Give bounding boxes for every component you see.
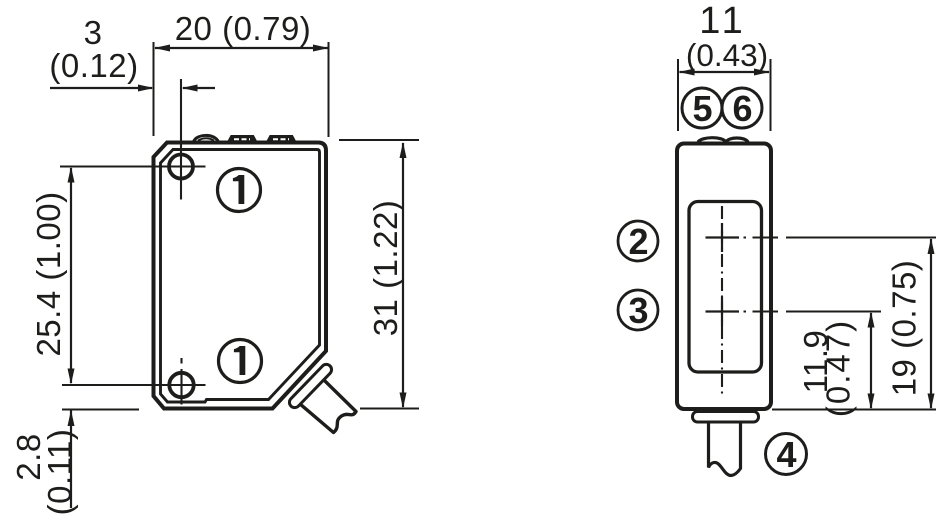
svg-text:20 (0.79): 20 (0.79) [175,10,312,47]
svg-text:3: 3 [84,14,103,51]
svg-text:31 (1.22): 31 (1.22) [367,200,404,337]
svg-text:5: 5 [692,88,712,129]
svg-text:6: 6 [732,88,752,129]
svg-text:11: 11 [699,0,746,42]
svg-text:3: 3 [628,290,648,331]
svg-text:2: 2 [628,221,648,262]
svg-text:(0.43): (0.43) [686,37,768,73]
svg-text:4: 4 [776,434,796,475]
svg-text:(0.47): (0.47) [820,319,857,417]
svg-text:(0.11): (0.11) [41,429,78,515]
svg-text:19 (0.75): 19 (0.75) [886,260,923,397]
svg-text:(0.12): (0.12) [49,47,138,84]
svg-text:25.4 (1.00): 25.4 (1.00) [30,191,67,356]
